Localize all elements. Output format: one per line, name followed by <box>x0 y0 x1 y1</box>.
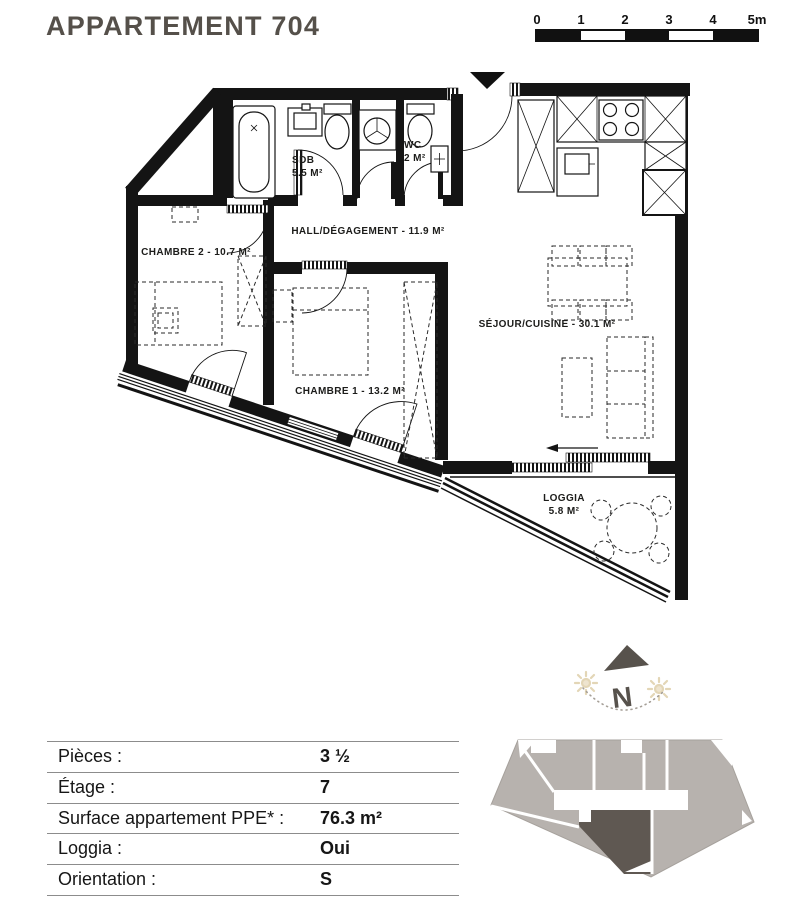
row-value: 3 ½ <box>320 742 459 772</box>
building-footprint-map <box>484 722 786 894</box>
scale-label-0: 0 <box>533 12 540 27</box>
label-chambre1: CHAMBRE 1 - 13.2 M² <box>295 386 405 397</box>
bathroom-sink <box>288 108 322 136</box>
kitchen-counter <box>557 96 686 142</box>
sun-icon <box>648 678 670 700</box>
entrance-arrow-icon <box>470 72 505 89</box>
north-arrow-icon <box>604 645 649 671</box>
coffee-table <box>562 358 592 417</box>
table-row: Orientation :S <box>47 865 459 896</box>
wc-toilet <box>407 104 434 114</box>
dining-table <box>548 258 627 306</box>
toilet <box>324 104 351 114</box>
row-label: Surface appartement PPE* : <box>47 804 320 834</box>
scale-label-4: 4 <box>709 12 717 27</box>
entry-door-arc <box>457 96 512 151</box>
scale-label-5: 5m <box>748 12 767 27</box>
table-row: Surface appartement PPE* :76.3 m² <box>47 804 459 835</box>
floor-plan-drawing: 0 1 2 3 4 5m <box>0 0 792 730</box>
scale-label-3: 3 <box>665 12 672 27</box>
north-compass: N <box>575 645 670 714</box>
label-loggia: LOGGIA <box>543 493 585 504</box>
glazed-facade <box>116 312 463 491</box>
sofa <box>607 337 645 438</box>
facade-door-leaf <box>189 375 234 397</box>
label-chambre2: CHAMBRE 2 - 10.7 M² <box>141 247 251 258</box>
table-row: Étage :7 <box>47 773 459 804</box>
label-sdb: SDB <box>292 155 314 166</box>
chambre2-desk <box>172 207 198 222</box>
floorplan-sheet: APPARTEMENT 704 0 1 2 3 4 5m <box>0 0 792 902</box>
row-value: S <box>320 865 459 895</box>
bathroom-fixtures <box>233 104 448 198</box>
row-value: 76.3 m² <box>320 804 459 834</box>
row-label: Pièces : <box>47 742 320 772</box>
row-value: Oui <box>320 834 459 864</box>
label-sejour: SÉJOUR/CUISINE - 30.1 M² <box>479 317 616 330</box>
scale-bar: 0 1 2 3 4 5m <box>533 12 766 41</box>
label-hall: HALL/DÉGAGEMENT - 11.9 M² <box>291 224 445 237</box>
chambre2-nightstand <box>153 308 178 333</box>
sliding-door-panel <box>512 463 592 472</box>
kitchen-sink <box>557 148 598 196</box>
label-wc: WC <box>404 140 421 151</box>
scale-label-1: 1 <box>577 12 584 27</box>
facade-door-leaf <box>353 429 403 452</box>
chambre1-wardrobe <box>404 282 437 458</box>
slide-direction-arrow-icon <box>546 444 558 452</box>
sliding-door-panel <box>566 453 650 462</box>
table-row: Loggia :Oui <box>47 834 459 865</box>
apartment-info-table: Pièces :3 ½ Étage :7 Surface appartement… <box>47 741 459 896</box>
chambre1-bed <box>293 288 368 375</box>
row-label: Loggia : <box>47 834 320 864</box>
row-value: 7 <box>320 773 459 803</box>
table-row: Pièces :3 ½ <box>47 742 459 773</box>
label-loggia-area: 5.8 M² <box>549 506 580 517</box>
kitchen-fixtures <box>518 96 686 215</box>
label-wc-area: 2 M² <box>404 153 426 164</box>
sun-icon <box>575 672 597 694</box>
scale-label-2: 2 <box>621 12 628 27</box>
chambre1-nightstand <box>273 290 292 322</box>
row-label: Orientation : <box>47 865 320 895</box>
row-label: Étage : <box>47 773 320 803</box>
loggia-table <box>607 503 657 553</box>
label-sdb-area: 5.5 M² <box>292 168 323 179</box>
